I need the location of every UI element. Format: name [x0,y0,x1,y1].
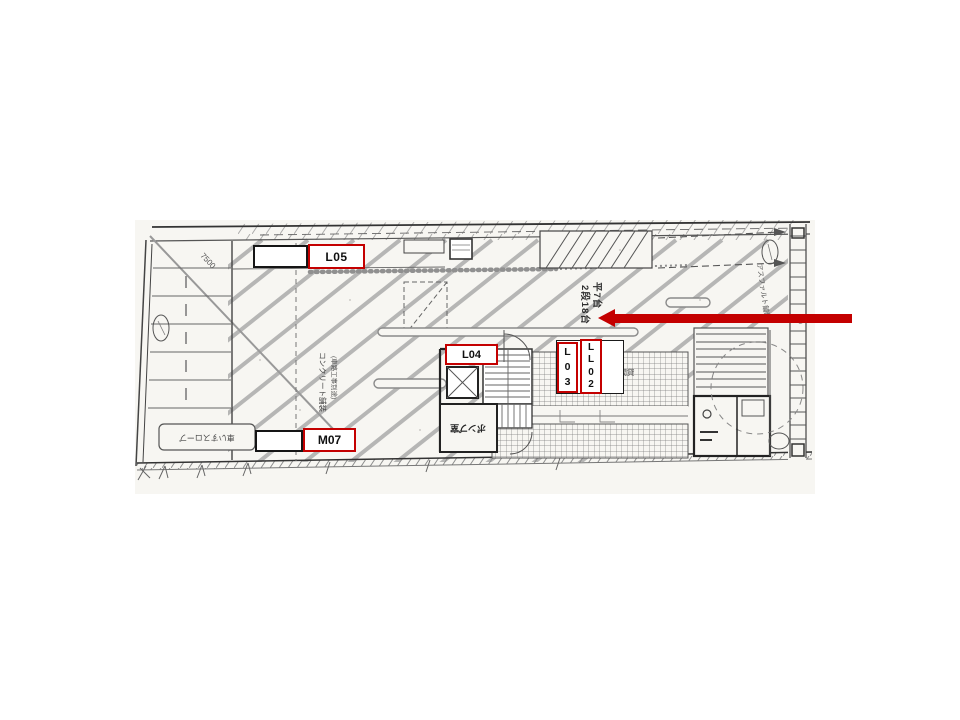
label-l03: L 0 3 [557,342,578,393]
label-l04: L04 [445,344,498,365]
pointer-arrow-body [613,314,852,323]
blank-box-l05 [253,245,308,268]
slope-text: 車いすスロープ [179,433,235,443]
pump-room-text: ポンプ室 [450,423,486,434]
capacity-text-right: 平7台 [591,282,603,309]
label-l05: L05 [308,244,365,269]
concrete-note-text: (車路工事別途) [330,356,339,399]
top-stair [540,231,652,268]
label-l02: L L 0 2 [580,339,602,394]
pointer-arrow-head-icon [598,309,615,327]
blank-box-m07 [255,430,303,452]
capacity-text-left: 2段18台 [579,285,591,325]
concrete-text: コンクリート舗装 [318,352,328,412]
slide-canvas: 平7台 2段18台 アスファルト舗装 コンクリート舗装 (車路工事別途) 時間貸… [0,0,960,720]
right-parking-ladder [788,224,806,460]
label-m07: M07 [303,428,356,452]
